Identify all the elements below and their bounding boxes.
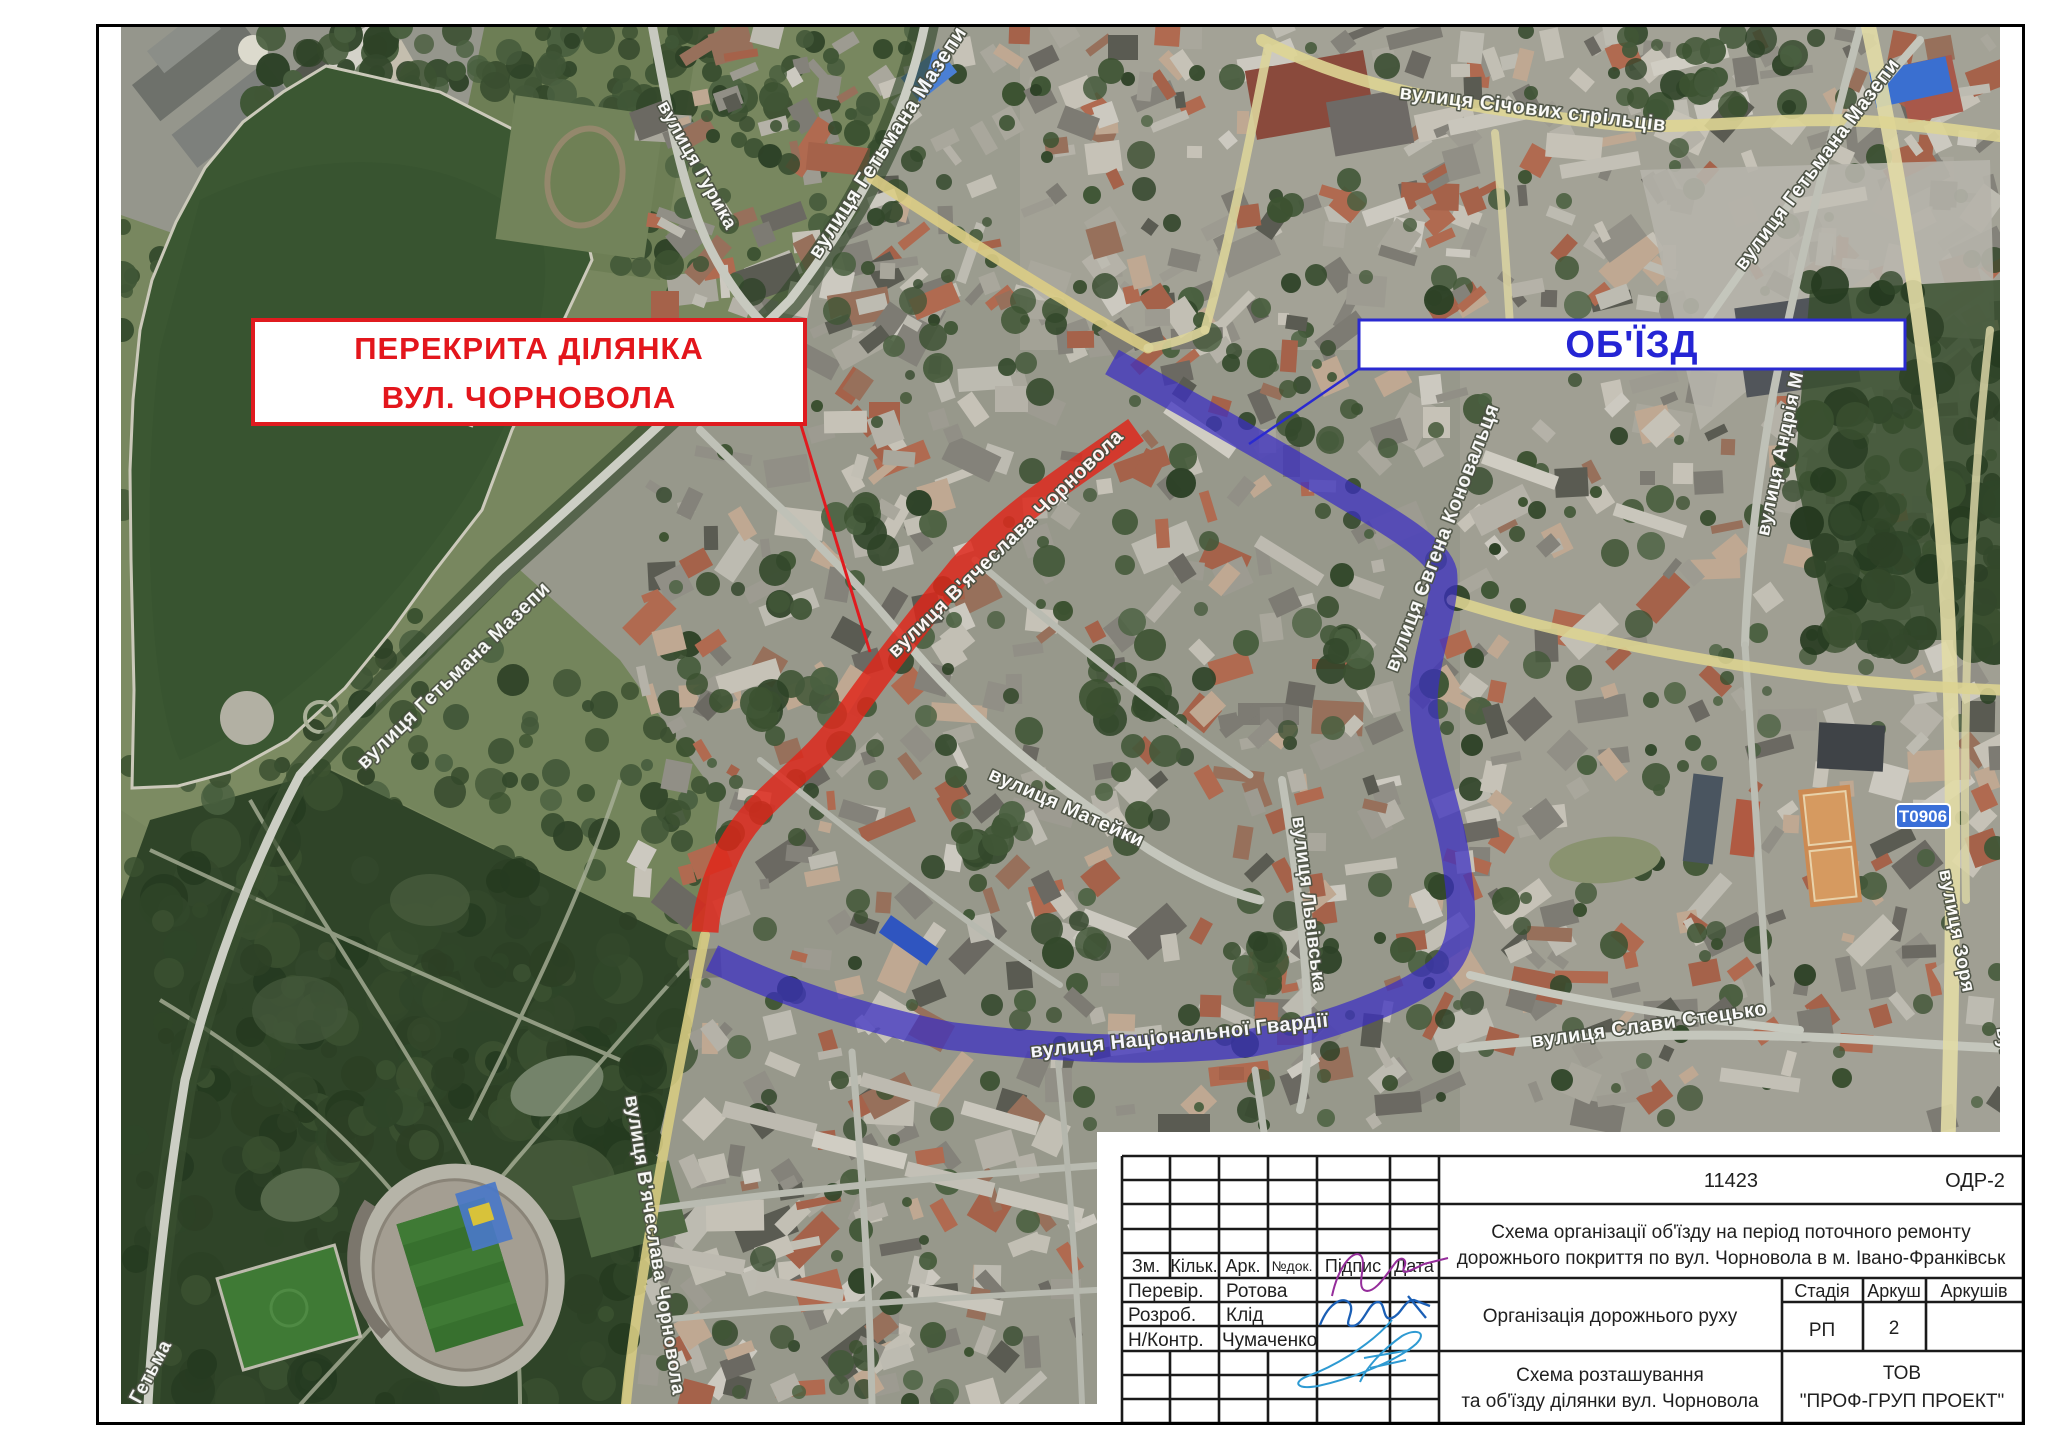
svg-text:Ротова: Ротова xyxy=(1226,1281,1288,1302)
svg-text:Перевір.: Перевір. xyxy=(1128,1281,1204,1302)
svg-text:Н/Контр.: Н/Контр. xyxy=(1128,1330,1204,1351)
svg-text:Чумаченко: Чумаченко xyxy=(1222,1330,1317,1351)
svg-text:ВУЛ. ЧОРНОВОЛА: ВУЛ. ЧОРНОВОЛА xyxy=(382,380,676,415)
svg-text:ПЕРЕКРИТА ДІЛЯНКА: ПЕРЕКРИТА ДІЛЯНКА xyxy=(354,331,704,366)
svg-text:Розроб.: Розроб. xyxy=(1128,1305,1196,1326)
svg-text:11423: 11423 xyxy=(1704,1170,1758,1192)
svg-text:Стадія: Стадія xyxy=(1794,1281,1849,1301)
svg-text:Аркушів: Аркушів xyxy=(1940,1281,2007,1301)
svg-text:ОБ'ЇЗД: ОБ'ЇЗД xyxy=(1565,323,1698,366)
svg-text:Кільк.: Кільк. xyxy=(1170,1256,1217,1276)
svg-text:Схема організації об'їзду на п: Схема організації об'їзду на період пото… xyxy=(1491,1222,1971,1243)
svg-text:Аркуш: Аркуш xyxy=(1867,1281,1921,1301)
svg-text:Т0906: Т0906 xyxy=(1899,807,1947,826)
svg-text:дорожнього покриття по вул. Чо: дорожнього покриття по вул. Чорновола в … xyxy=(1457,1248,2006,1269)
svg-text:РП: РП xyxy=(1809,1320,1835,1341)
svg-text:Схема розташування: Схема розташування xyxy=(1516,1365,1704,1386)
svg-text:"ПРОФ-ГРУП ПРОЕКТ": "ПРОФ-ГРУП ПРОЕКТ" xyxy=(1800,1391,2005,1412)
svg-text:Підпис: Підпис xyxy=(1325,1256,1381,1276)
svg-text:Арк.: Арк. xyxy=(1226,1256,1261,1276)
svg-text:2: 2 xyxy=(1889,1318,1900,1339)
svg-text:та об'їзду ділянки вул. Чорнов: та об'їзду ділянки вул. Чорновола xyxy=(1461,1391,1759,1412)
svg-text:ТОВ: ТОВ xyxy=(1883,1363,1921,1384)
svg-text:№док.: №док. xyxy=(1272,1258,1313,1274)
svg-text:ОДР-2: ОДР-2 xyxy=(1945,1170,2005,1192)
svg-text:Організація дорожнього руху: Організація дорожнього руху xyxy=(1483,1306,1738,1327)
svg-text:Клід: Клід xyxy=(1226,1305,1263,1326)
svg-text:Зм.: Зм. xyxy=(1132,1256,1160,1276)
